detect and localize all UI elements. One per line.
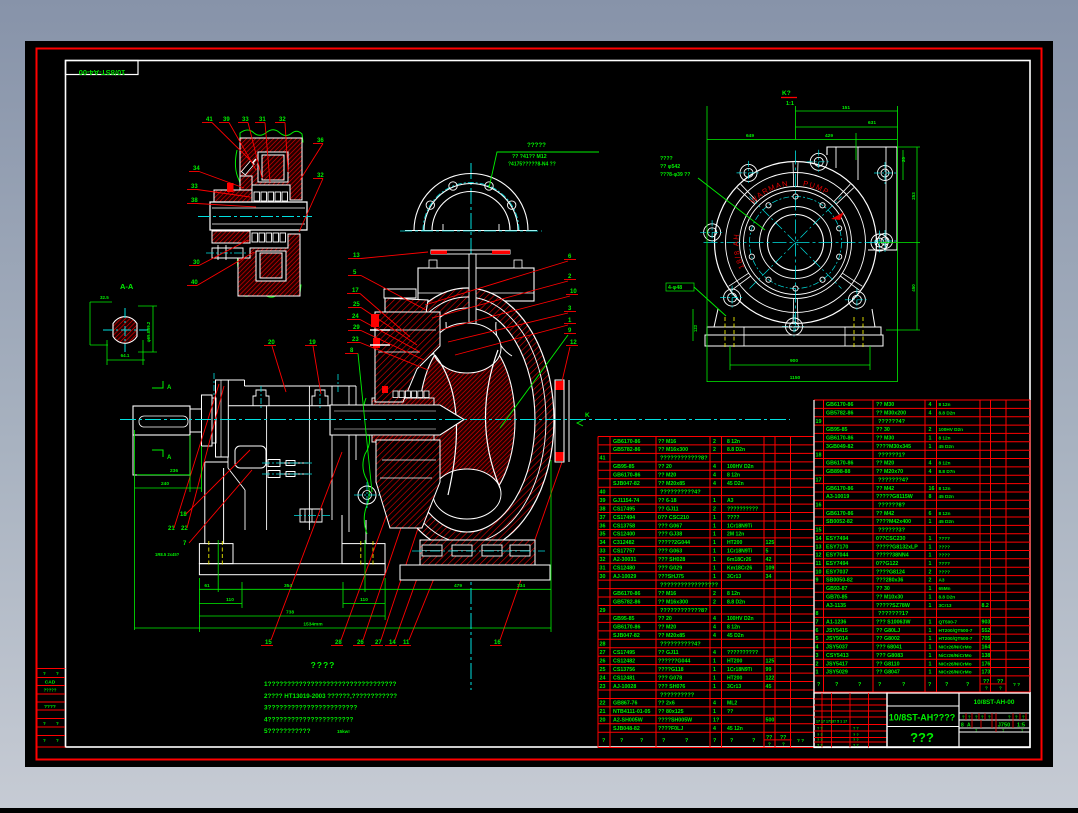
svg-text:1: 1 [929, 603, 932, 609]
svg-text:HT200/QT500-7: HT200/QT500-7 [939, 628, 973, 633]
svg-text:3Cr13: 3Cr13 [727, 574, 741, 580]
svg-text:3: 3 [816, 653, 819, 659]
svg-text:2: 2 [929, 427, 932, 433]
svg-text:??? 68041: ??? 68041 [876, 645, 902, 651]
svg-text:CSY5413: CSY5413 [826, 653, 849, 659]
svg-text:1: 1 [713, 540, 716, 546]
svg-text:1: 1 [713, 549, 716, 555]
svg-text:CS12481: CS12481 [613, 675, 635, 681]
svg-text:110: 110 [226, 597, 234, 603]
svg-text:GJ1154-74: GJ1154-74 [613, 498, 639, 504]
svg-text:?: ? [988, 715, 991, 720]
svg-text:?: ? [858, 682, 861, 688]
svg-text:1: 1 [713, 523, 716, 529]
svg-text:649: 649 [746, 133, 754, 139]
svg-text:CS17495: CS17495 [613, 650, 635, 656]
svg-text:?: ? [43, 671, 46, 676]
svg-text:1: 1 [929, 628, 932, 634]
svg-text:SB0052-82: SB0052-82 [826, 519, 853, 525]
svg-text:?? M42: ?? M42 [876, 511, 894, 517]
svg-text:8: 8 [816, 611, 819, 617]
svg-text:??? G067: ??? G067 [658, 523, 682, 529]
svg-text:8.2: 8.2 [982, 603, 989, 609]
svg-text:SJB048-82: SJB048-82 [613, 726, 640, 732]
svg-text:15: 15 [816, 528, 822, 534]
svg-text:2???? HT13019-2003 ??????,????: 2???? HT13019-2003 ??????,???????????? [264, 693, 397, 700]
svg-text:??????????: ?????????? [727, 650, 758, 656]
svg-text:JSY5037: JSY5037 [826, 645, 848, 651]
svg-text:?: ? [835, 682, 838, 688]
svg-text:????G8124: ????G8124 [876, 569, 905, 575]
svg-text:1: 1 [929, 553, 932, 559]
svg-text:18: 18 [180, 512, 187, 518]
svg-text:27: 27 [600, 650, 606, 656]
svg-text:61: 61 [204, 583, 210, 589]
svg-text:???8-φ39 ??: ???8-φ39 ?? [660, 172, 690, 178]
svg-text:1: 1 [929, 670, 932, 676]
svg-text:30: 30 [600, 574, 606, 580]
svg-text:?: ? [730, 738, 733, 744]
svg-text:? ?: ? ? [853, 727, 859, 731]
svg-text:Km18Cr26: Km18Cr26 [727, 566, 752, 572]
svg-text:2: 2 [713, 599, 716, 605]
svg-text:QT500-7: QT500-7 [939, 620, 958, 625]
svg-text:1: 1 [929, 444, 932, 450]
svg-text:?: ? [752, 738, 755, 744]
svg-text:????: ???? [939, 561, 951, 566]
svg-text:253: 253 [911, 192, 916, 200]
svg-text:?? M16x300: ?? M16x300 [658, 599, 688, 605]
svg-text:4: 4 [713, 616, 716, 622]
svg-text:32.5: 32.5 [100, 295, 109, 300]
svg-text:17: 17 [816, 477, 822, 483]
svg-text:? ?: ? ? [853, 733, 859, 737]
svg-text:A: A [167, 455, 172, 461]
svg-text:?: ? [878, 682, 881, 688]
svg-text:????F0LJ: ????F0LJ [658, 726, 683, 732]
svg-text:?: ? [640, 738, 643, 744]
svg-text:0?? CSC210: 0?? CSC210 [658, 515, 689, 521]
svg-text:18: 18 [816, 452, 822, 458]
svg-text:?? GJ11: ?? GJ11 [658, 650, 679, 656]
svg-text:?: ? [602, 738, 605, 744]
svg-text:AJ-10028: AJ-10028 [613, 684, 636, 690]
svg-text:4: 4 [713, 701, 716, 707]
svg-text:?????: ????? [44, 688, 57, 693]
svg-text:164: 164 [982, 645, 991, 651]
svg-text:? ?: ? ? [853, 738, 859, 742]
svg-text:GB6170-86: GB6170-86 [613, 439, 640, 445]
svg-text:?????2G044: ?????2G044 [658, 540, 690, 546]
svg-text:????????????8?: ????????????8? [660, 608, 708, 614]
svg-text:19: 19 [816, 419, 822, 425]
svg-text:?? M42: ?? M42 [876, 486, 894, 492]
svg-text:1: 1 [713, 675, 716, 681]
svg-text:????: ???? [311, 660, 336, 670]
svg-text:JSY5014: JSY5014 [826, 636, 848, 642]
svg-text:????: ???? [44, 704, 56, 710]
svg-text:4: 4 [816, 645, 819, 651]
svg-text:?: ? [945, 682, 948, 688]
svg-text:1: 1 [929, 436, 932, 442]
svg-text:4: 4 [929, 411, 932, 417]
svg-text:236: 236 [170, 468, 178, 474]
svg-text:1: 1 [713, 684, 716, 690]
svg-text:????: ???? [939, 536, 951, 541]
svg-text:1: 1 [713, 498, 716, 504]
svg-text:??? SH076: ??? SH076 [658, 684, 685, 690]
svg-text:45 D2n: 45 D2n [727, 481, 744, 487]
svg-text:?: ? [902, 682, 905, 688]
svg-text:4??????????????????????: 4?????????????????????? [264, 717, 354, 724]
svg-text:?: ? [43, 738, 46, 743]
svg-text:?: ? [782, 741, 785, 746]
svg-text:15kw!: 15kw! [337, 729, 350, 734]
svg-text:1Cr18N9Ti: 1Cr18N9Ti [727, 523, 753, 529]
svg-text:?? G8047: ?? G8047 [876, 670, 900, 676]
svg-text:A2-SH005W: A2-SH005W [613, 718, 643, 724]
svg-text:ESY7037: ESY7037 [826, 569, 848, 575]
svg-text:45 D2n: 45 D2n [939, 494, 955, 499]
svg-text:8.8 D2n: 8.8 D2n [727, 599, 745, 605]
svg-text:GB6170-86: GB6170-86 [826, 402, 853, 408]
svg-text:36: 36 [600, 523, 606, 529]
svg-text:NiCr26/NiCrMo: NiCr26/NiCrMo [939, 661, 972, 666]
svg-text:??? SH028: ??? SH028 [658, 557, 685, 563]
svg-text:GB5782-86: GB5782-86 [826, 411, 853, 417]
svg-text:?? M30: ?? M30 [876, 402, 894, 408]
svg-text:?????????????????: ????????????????? [660, 582, 719, 588]
svg-text:A3-1135: A3-1135 [826, 603, 846, 609]
svg-text:2: 2 [713, 591, 716, 597]
svg-text:9: 9 [816, 578, 819, 584]
svg-text:K?: K? [782, 90, 791, 97]
svg-text:1R8.5 2x45?: 1R8.5 2x45? [155, 552, 180, 557]
svg-text:?? M20x85: ?? M20x85 [658, 481, 685, 487]
svg-text:ESY7044: ESY7044 [826, 553, 848, 559]
svg-text:GB93-87: GB93-87 [826, 586, 848, 592]
svg-text:?? M20x85: ?? M20x85 [658, 633, 685, 639]
svg-text:42: 42 [766, 557, 772, 563]
svg-text:1: 1 [713, 709, 716, 715]
svg-text:1?: 1? [713, 718, 719, 724]
svg-text:?? M20: ?? M20 [658, 473, 676, 479]
svg-text:4: 4 [713, 473, 716, 479]
svg-text:GB5782-86: GB5782-86 [613, 447, 640, 453]
svg-text:1: 1 [713, 532, 716, 538]
svg-text:GB6170-86: GB6170-86 [826, 486, 853, 492]
svg-text:JSY5415: JSY5415 [826, 628, 848, 634]
svg-text:?? M10x30: ?? M10x30 [876, 594, 903, 600]
svg-text:??? G8083: ??? G8083 [876, 653, 903, 659]
svg-text:1:1: 1:1 [786, 101, 794, 107]
svg-text:37: 37 [600, 515, 606, 521]
svg-text:13: 13 [816, 544, 822, 550]
svg-text:354: 354 [284, 583, 292, 589]
svg-text:A3-10019: A3-10019 [826, 494, 849, 500]
svg-text:8 12n: 8 12n [939, 461, 951, 466]
svg-text:JSY5417: JSY5417 [826, 661, 848, 667]
svg-text:7: 7 [816, 620, 819, 626]
svg-text:4: 4 [713, 625, 716, 631]
svg-text:1: 1 [929, 519, 932, 525]
svg-text:CS17494: CS17494 [613, 515, 635, 521]
svg-text:CS12480: CS12480 [613, 566, 635, 572]
svg-text:3???????????????????????: 3??????????????????????? [264, 705, 357, 712]
svg-text:10/8ST-AH????: 10/8ST-AH???? [889, 713, 956, 723]
svg-text:1: 1 [713, 658, 716, 664]
svg-text:176: 176 [982, 661, 991, 667]
svg-text:1: 1 [713, 667, 716, 673]
svg-text:1: 1 [713, 566, 716, 572]
svg-text:GB95-85: GB95-85 [826, 427, 848, 433]
svg-text:8 12n: 8 12n [939, 402, 951, 407]
svg-text:2M 12n: 2M 12n [727, 532, 744, 538]
svg-text:25: 25 [600, 667, 606, 673]
svg-text:100HV D2n: 100HV D2n [727, 616, 754, 622]
svg-text:??????3?: ??????3? [878, 528, 906, 534]
svg-text:21: 21 [600, 709, 606, 715]
svg-text:?: ? [713, 738, 716, 744]
svg-text:125: 125 [766, 658, 775, 664]
svg-text:123: 123 [693, 324, 698, 332]
svg-text:A1-1236: A1-1236 [826, 620, 846, 626]
svg-text:23: 23 [600, 684, 606, 690]
svg-text:24: 24 [600, 675, 606, 681]
svg-text:4: 4 [713, 726, 716, 732]
svg-text:?? M30x200: ?? M30x200 [876, 411, 906, 417]
svg-text:?? 20: ?? 20 [658, 616, 672, 622]
svg-text:22: 22 [600, 701, 606, 707]
svg-text:??????????: ?????????? [660, 692, 695, 698]
svg-text:ESY7494: ESY7494 [826, 536, 848, 542]
svg-text:738: 738 [286, 610, 294, 616]
svg-text:4: 4 [929, 461, 932, 467]
svg-text:33: 33 [600, 549, 606, 555]
svg-text:4: 4 [713, 650, 716, 656]
svg-text:CS17757: CS17757 [613, 549, 635, 555]
svg-text:5: 5 [816, 636, 819, 642]
svg-text:8.8 D2n: 8.8 D2n [727, 447, 745, 453]
svg-text:8: 8 [961, 722, 964, 728]
svg-text:CS12400: CS12400 [613, 532, 635, 538]
svg-text:100HV D2n: 100HV D2n [727, 464, 754, 470]
svg-text:?: ? [620, 738, 623, 744]
svg-text:1: 1 [929, 653, 932, 659]
svg-text:8 12n: 8 12n [727, 473, 740, 479]
svg-text:?: ? [662, 738, 665, 744]
svg-text:31: 31 [600, 566, 606, 572]
svg-text:?: ? [975, 715, 978, 720]
svg-text:?? M30: ?? M30 [876, 436, 894, 442]
svg-text:2: 2 [929, 569, 932, 575]
svg-text:41: 41 [600, 456, 606, 462]
svg-text:AJ-10029: AJ-10029 [613, 574, 636, 580]
svg-text:1: 1 [929, 544, 932, 550]
svg-text:A3: A3 [727, 498, 734, 504]
svg-text:?: ? [928, 682, 931, 688]
svg-text:?: ? [685, 738, 688, 744]
svg-text:38: 38 [600, 506, 606, 512]
svg-text:ESY7170: ESY7170 [826, 544, 848, 550]
svg-text:????M30x345: ????M30x345 [876, 444, 911, 450]
svg-text:1150: 1150 [790, 375, 801, 381]
svg-text:1: 1 [929, 586, 932, 592]
svg-text:?? M16x300: ?? M16x300 [658, 447, 688, 453]
svg-text:?????SZ78W: ?????SZ78W [876, 603, 910, 609]
svg-text:16: 16 [816, 502, 822, 508]
svg-text:4: 4 [713, 464, 716, 470]
svg-text:GB867-76: GB867-76 [613, 701, 637, 707]
svg-text:4: 4 [713, 481, 716, 487]
svg-text:??? G078: ??? G078 [658, 675, 682, 681]
svg-text:?? 2x6: ?? 2x6 [658, 701, 675, 707]
svg-text:125: 125 [766, 540, 775, 546]
svg-text:GB898-88: GB898-88 [826, 469, 850, 475]
svg-text:1: 1 [713, 557, 716, 563]
svg-text:????SH005W: ????SH005W [658, 718, 692, 724]
svg-text:????: ???? [727, 515, 739, 521]
svg-text:4: 4 [713, 633, 716, 639]
svg-text:2: 2 [816, 661, 819, 667]
svg-text:?? G80LJ: ?? G80LJ [876, 628, 900, 634]
svg-text:1: 1 [929, 661, 932, 667]
svg-text:2: 2 [713, 506, 716, 512]
svg-text:?? 6-18: ?? 6-18 [658, 498, 677, 504]
svg-text:?? 30: ?? 30 [876, 586, 890, 592]
svg-text:CS17495: CS17495 [613, 506, 635, 512]
svg-text:?? GJ11: ?? GJ11 [658, 506, 679, 512]
svg-text:? ?: ? ? [817, 727, 823, 731]
svg-text:? ?: ? ? [1013, 682, 1020, 688]
svg-text:??????????4?: ??????????4? [660, 642, 701, 648]
svg-text:100HV D2n: 100HV D2n [939, 427, 964, 432]
svg-text:?: ? [999, 685, 1002, 690]
svg-text:8.8 D7n: 8.8 D7n [939, 469, 956, 474]
svg-text:GB6170-86: GB6170-86 [826, 436, 853, 442]
svg-text:99: 99 [766, 667, 772, 673]
svg-text:45 D2n: 45 D2n [939, 519, 955, 524]
svg-text:?: ? [56, 721, 59, 726]
svg-text:8.8 D2n: 8.8 D2n [939, 594, 956, 599]
svg-text:????: ???? [660, 156, 673, 162]
svg-text:28: 28 [600, 642, 606, 648]
svg-text:???SHJ75: ???SHJ75 [658, 574, 684, 580]
svg-text:705: 705 [982, 636, 991, 642]
svg-text:35: 35 [600, 532, 606, 538]
svg-text:??????G044: ??????G044 [658, 658, 690, 664]
svg-text:34: 34 [600, 540, 606, 546]
svg-text:CS12482: CS12482 [613, 658, 635, 664]
svg-text:?: ? [962, 715, 965, 720]
svg-text:????G118: ????G118 [658, 667, 684, 673]
svg-text:151: 151 [842, 105, 850, 111]
svg-text:500: 500 [766, 718, 775, 724]
svg-text:SJB047-82: SJB047-82 [613, 481, 640, 487]
svg-text:NTB4111-01-05: NTB4111-01-05 [613, 709, 650, 715]
svg-text:A: A [967, 722, 971, 728]
svg-text:?? 20: ?? 20 [658, 464, 672, 470]
svg-text:JSY5029: JSY5029 [826, 670, 848, 676]
svg-text:1Cr18N9Ti: 1Cr18N9Ti [727, 667, 753, 673]
svg-text:????: ???? [939, 569, 951, 574]
svg-text:552: 552 [982, 628, 991, 634]
svg-text:??????4?: ??????4? [878, 419, 906, 425]
svg-text:SB0050-82: SB0050-82 [826, 578, 853, 584]
svg-text:0??G122: 0??G122 [876, 561, 898, 567]
svg-text:5: 5 [766, 549, 769, 555]
svg-text:1: 1 [929, 594, 932, 600]
svg-text:4: 4 [929, 402, 932, 408]
svg-text:????????????8?: ????????????8? [660, 456, 708, 462]
svg-text:??? GJ38: ??? GJ38 [658, 532, 682, 538]
svg-text:3GB049-82: 3GB049-82 [826, 444, 853, 450]
svg-text:1: 1 [929, 561, 932, 567]
svg-text:8 12n: 8 12n [727, 591, 740, 597]
svg-text:20: 20 [600, 718, 606, 724]
svg-text:110: 110 [360, 597, 368, 603]
svg-text:GB6170-86: GB6170-86 [613, 473, 640, 479]
svg-text:1: 1 [713, 515, 716, 521]
svg-text:122: 122 [766, 675, 775, 681]
svg-text:6m18Cr26: 6m18Cr26 [727, 557, 752, 563]
svg-text:8.8 D2n: 8.8 D2n [939, 411, 956, 416]
svg-text:45 D2n: 45 D2n [727, 633, 744, 639]
svg-text:3Cr13: 3Cr13 [727, 684, 741, 690]
svg-text:NiCr26/NiCrMo: NiCr26/NiCrMo [939, 670, 972, 675]
svg-text:A3: A3 [939, 578, 945, 583]
svg-text:1: 1 [816, 670, 819, 676]
svg-text:A-A: A-A [120, 282, 134, 291]
svg-text:450: 450 [911, 284, 916, 292]
svg-text:HT200: HT200 [727, 675, 742, 681]
svg-text:?? G8110: ?? G8110 [876, 661, 900, 667]
svg-text:CS13756: CS13756 [613, 667, 635, 673]
svg-text:1: 1 [929, 620, 932, 626]
svg-text:CAD: CAD [45, 680, 56, 686]
svg-text:GB6170-86: GB6170-86 [613, 625, 640, 631]
svg-text:GB6170-86: GB6170-86 [826, 511, 853, 517]
svg-text:?4175?????8-N4 ??: ?4175?????8-N4 ?? [508, 162, 556, 168]
svg-text:???: ??? [910, 730, 934, 745]
svg-text:11: 11 [816, 561, 822, 567]
svg-text:45 D2n: 45 D2n [939, 444, 955, 449]
svg-text:?: ? [966, 682, 969, 688]
svg-text:2: 2 [929, 578, 932, 584]
svg-text:16: 16 [929, 486, 935, 492]
svg-text:334: 334 [517, 583, 525, 589]
svg-text:45 12n: 45 12n [727, 726, 743, 732]
svg-text:1: 1 [713, 574, 716, 580]
svg-text:?? ?41?? M12: ?? ?41?? M12 [512, 154, 547, 160]
svg-text:A: A [167, 385, 172, 391]
svg-text:? ?: ? ? [853, 744, 859, 748]
svg-text:NiCr26/NiCrMo: NiCr26/NiCrMo [939, 653, 972, 658]
svg-text:?? M20: ?? M20 [876, 461, 894, 467]
svg-text:2: 2 [713, 447, 716, 453]
svg-text:GB6170-86: GB6170-86 [826, 461, 853, 467]
svg-text:8: 8 [929, 494, 932, 500]
svg-text:?????G8132xLP: ?????G8132xLP [876, 544, 918, 550]
svg-text:?????38NN4: ?????38NN4 [876, 553, 909, 559]
svg-text:??????1?: ??????1? [878, 452, 906, 458]
svg-text:109: 109 [766, 566, 775, 572]
svg-text:ML2: ML2 [727, 701, 737, 707]
svg-text:?? G8002: ?? G8002 [876, 636, 900, 642]
svg-text:?: ? [43, 721, 46, 726]
svg-text:GB95-85: GB95-85 [613, 464, 635, 470]
svg-text:GB95-85: GB95-85 [613, 616, 635, 622]
